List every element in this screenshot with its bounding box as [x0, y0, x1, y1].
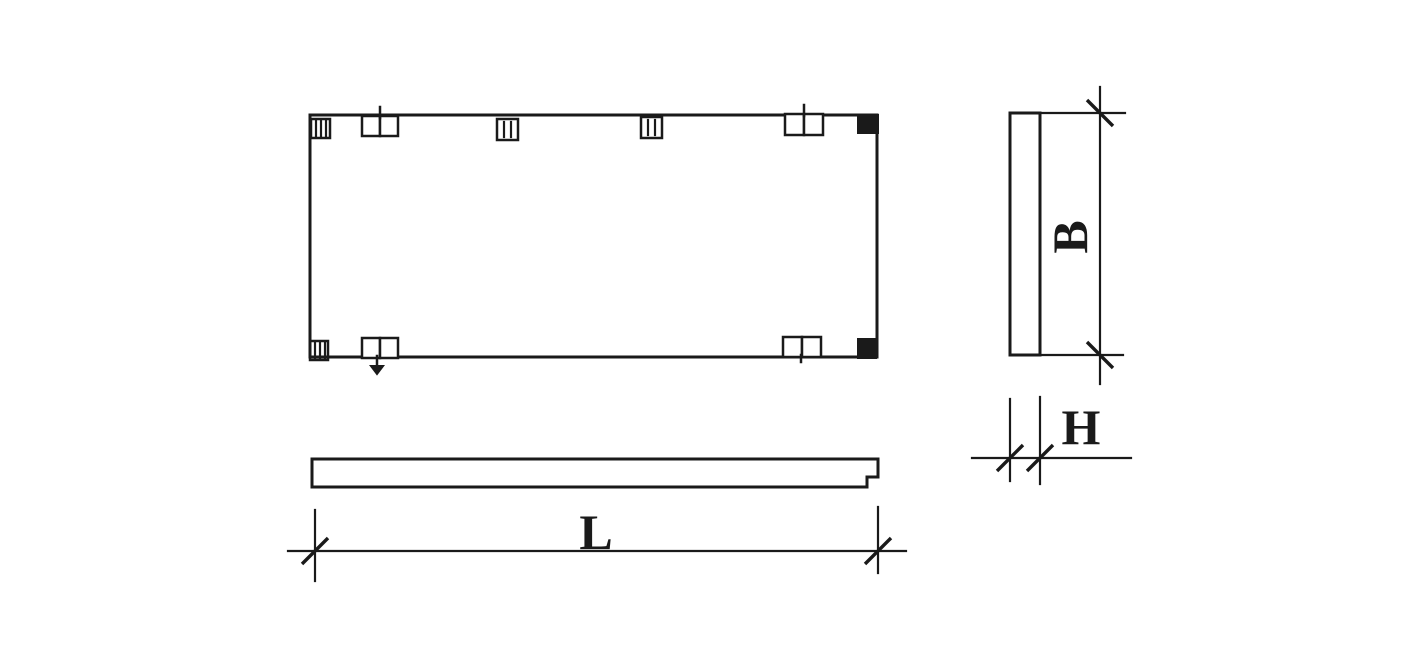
lifting-loop-bottom-right [783, 337, 821, 362]
plan-outline [310, 115, 877, 357]
embedded-socket-left [497, 119, 518, 140]
width-dimension: B [1042, 87, 1113, 384]
side-view-outline [1010, 113, 1040, 355]
thickness-dimension: H [972, 397, 1131, 484]
lifting-loop-bottom-left [362, 338, 398, 374]
front-elevation [312, 459, 878, 487]
corner-anchor-top-right [858, 115, 878, 133]
corner-anchor-top-left [311, 119, 330, 138]
front-elevation-outline [312, 459, 878, 487]
corner-anchor-bottom-right [858, 339, 876, 358]
panel-drawing: L B H [0, 0, 1416, 672]
width-label: B [1042, 220, 1098, 253]
length-dimension: L [288, 504, 906, 581]
loop-pin-arrow [371, 366, 383, 374]
lifting-loop-top-left [362, 107, 398, 136]
embedded-socket-right [641, 117, 662, 138]
lifting-loop-top-right [785, 105, 823, 135]
length-label: L [579, 504, 612, 560]
thickness-label: H [1062, 399, 1101, 455]
plan-view [310, 105, 878, 374]
drawing-svg: L B H [0, 0, 1416, 672]
